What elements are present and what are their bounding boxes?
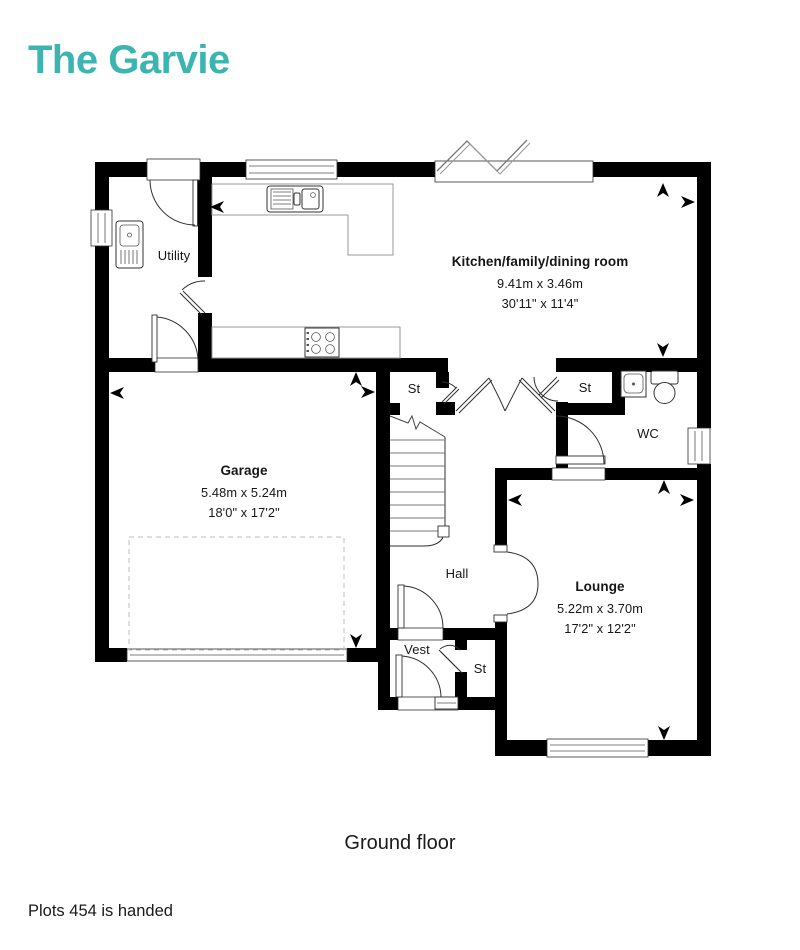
hob [305,328,339,357]
utility-back-door-opening [147,159,200,180]
wc-window [688,428,710,464]
utility-label: Utility [158,248,191,263]
vest-label: Vest [404,642,430,657]
utility-back-door [150,180,198,226]
lounge-window [547,739,648,757]
plots-footnote: Plots 454 is handed [28,902,173,921]
lounge-double-doors [494,545,538,622]
floor-plan: Utility Kitchen/family/dining room 9.41m… [0,0,800,950]
utility-window [91,210,112,246]
bifold-door-opening [435,140,593,182]
toilet [651,371,678,404]
garage-door [127,649,347,661]
floor-caption: Ground floor [0,832,800,855]
kitchen-sink [267,186,323,212]
vest-hall-door [398,585,443,640]
hall-label: Hall [446,566,469,581]
garage-metric: 5.48m x 5.24m [201,485,287,500]
store-bottom-label: St [474,661,487,676]
garage-parking-outline [129,537,344,650]
store-left-label: St [408,381,421,396]
lounge-label: Lounge [575,579,625,594]
store-right-door [534,377,559,401]
kitchen-window [246,160,337,179]
french-doors [456,378,555,413]
page: The Garvie [0,0,800,950]
kitchen-imperial: 30'11" x 11'4" [502,296,579,311]
garage-label: Garage [220,463,268,478]
staircase [390,416,449,546]
store-right-label: St [579,380,592,395]
lounge-metric: 5.22m x 3.70m [557,601,643,616]
front-door [396,655,458,710]
garage-imperial: 18'0" x 17'2" [208,505,279,520]
newel-post [438,526,449,537]
wc-label: WC [637,426,659,441]
utility-garage-door [152,315,198,372]
utility-kitchen-door [180,281,205,315]
utility-sink [116,221,143,268]
lounge-imperial: 17'2" x 12'2" [564,621,635,636]
kitchen-label: Kitchen/family/dining room [452,254,629,269]
kitchen-metric: 9.41m x 3.46m [497,276,583,291]
wc-basin [621,371,646,397]
